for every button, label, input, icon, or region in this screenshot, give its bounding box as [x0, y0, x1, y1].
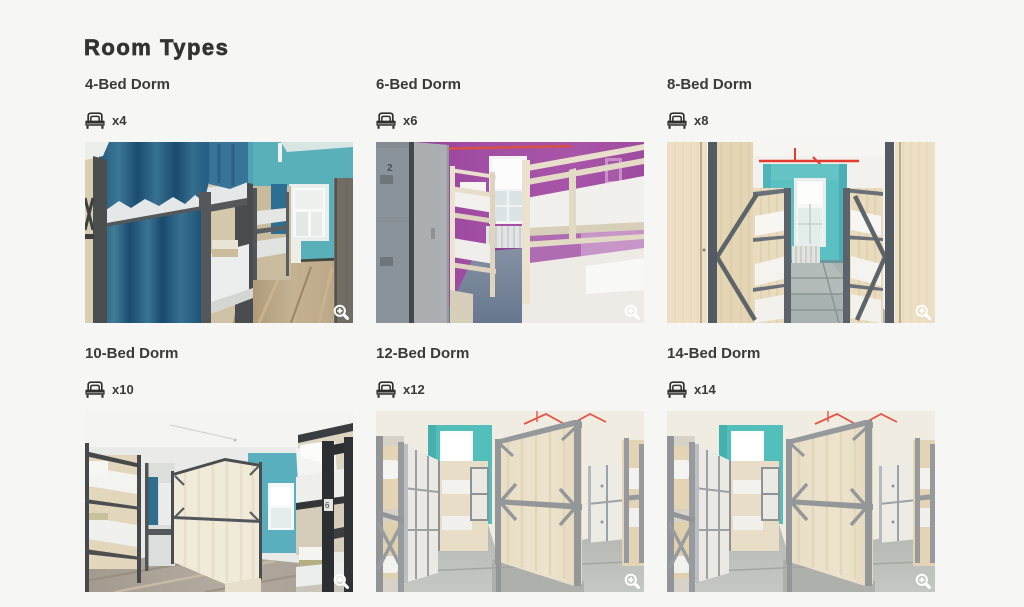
svg-text:2: 2	[387, 163, 393, 174]
svg-text:6: 6	[325, 501, 330, 510]
